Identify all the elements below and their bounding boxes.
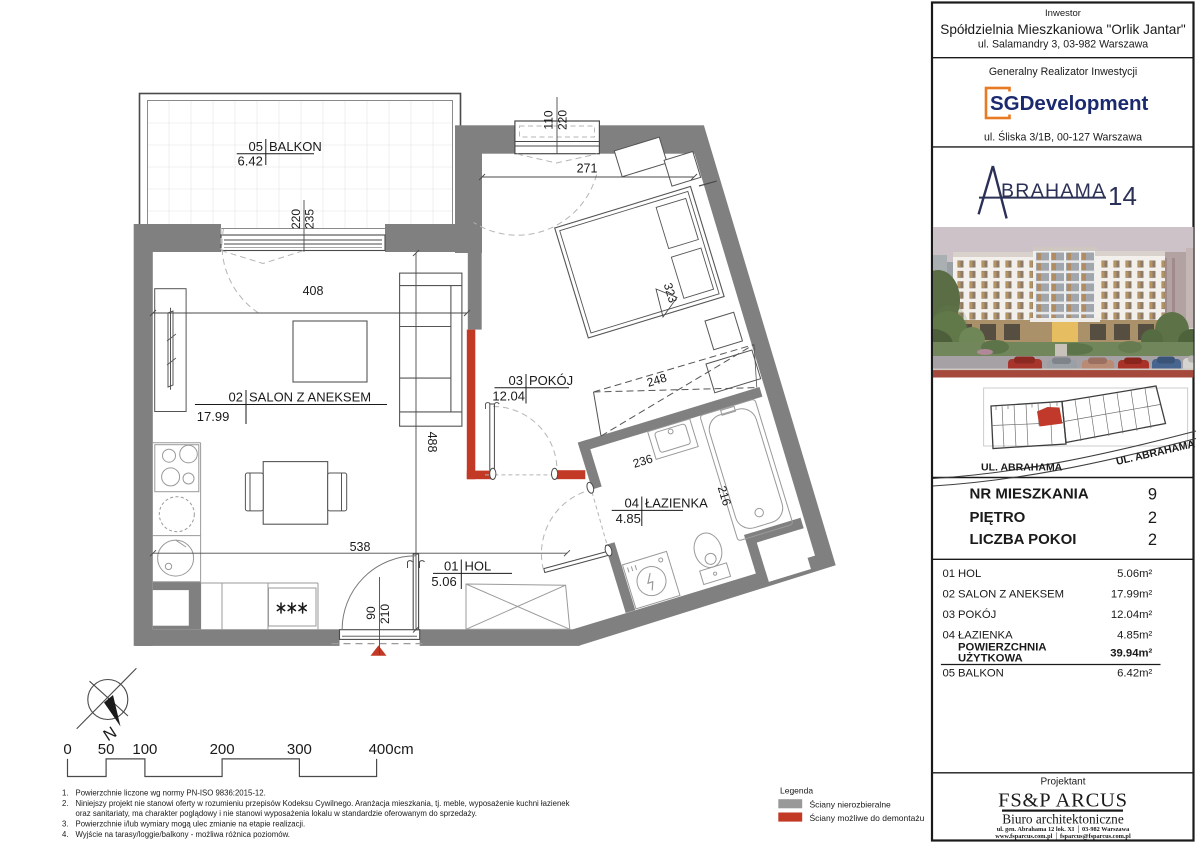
svg-text:PIĘTRO: PIĘTRO <box>970 509 1026 526</box>
svg-text:400cm: 400cm <box>369 741 414 758</box>
svg-text:UL. ABRAHAMA: UL. ABRAHAMA <box>981 462 1063 474</box>
svg-text:9: 9 <box>1148 486 1157 504</box>
svg-text:4.: 4. <box>62 830 69 839</box>
svg-text:SALON Z ANEKSEM: SALON Z ANEKSEM <box>249 390 371 405</box>
svg-text:50: 50 <box>98 741 115 758</box>
svg-text:488: 488 <box>425 432 439 453</box>
svg-text:NR MIESZKANIA: NR MIESZKANIA <box>970 486 1089 503</box>
svg-text:oraz sanitariaty, ma charakter: oraz sanitariaty, ma charakter poglądowy… <box>76 809 477 818</box>
svg-text:5.06: 5.06 <box>431 574 456 589</box>
svg-text:Ściany nierozbieralne: Ściany nierozbieralne <box>810 799 892 810</box>
svg-text:POKÓJ: POKÓJ <box>958 608 996 621</box>
svg-text:Legenda: Legenda <box>780 786 813 796</box>
svg-text:538: 538 <box>350 540 371 554</box>
svg-text:0: 0 <box>63 741 71 758</box>
svg-text:ŁAZIENKA: ŁAZIENKA <box>958 630 1013 642</box>
svg-text:ul. Salamandry 3, 03-982 Warsz: ul. Salamandry 3, 03-982 Warszawa <box>978 39 1148 51</box>
svg-text:2: 2 <box>1148 509 1157 527</box>
svg-text:POKÓJ: POKÓJ <box>529 373 573 388</box>
svg-text:3.: 3. <box>62 820 69 829</box>
svg-text:Inwestor: Inwestor <box>1045 8 1081 19</box>
svg-text:248: 248 <box>645 370 669 389</box>
svg-text:14: 14 <box>1108 181 1137 211</box>
svg-text:5.06m²: 5.06m² <box>1117 568 1152 580</box>
svg-text:271: 271 <box>577 162 598 176</box>
svg-text:03: 03 <box>943 609 956 621</box>
svg-text:220: 220 <box>289 209 303 229</box>
svg-text:02: 02 <box>943 589 956 601</box>
svg-text:02: 02 <box>229 390 243 405</box>
svg-text:6.42: 6.42 <box>238 154 263 169</box>
svg-text:4.85m²: 4.85m² <box>1117 630 1152 642</box>
svg-text:235: 235 <box>303 209 317 229</box>
svg-text:Niniejszy projekt nie stanowi: Niniejszy projekt nie stanowi oferty w r… <box>76 799 570 808</box>
svg-text:4.85: 4.85 <box>616 511 641 526</box>
svg-text:04: 04 <box>625 496 639 511</box>
svg-text:ŁAZIENKA: ŁAZIENKA <box>645 496 708 511</box>
svg-text:01: 01 <box>943 568 956 580</box>
svg-text:12.04: 12.04 <box>492 389 525 404</box>
svg-text:200: 200 <box>210 741 235 758</box>
svg-text:BALKON: BALKON <box>269 139 322 154</box>
svg-text:90: 90 <box>364 606 378 620</box>
svg-text:Powierzchnie liczone wg normy: Powierzchnie liczone wg normy PN-ISO 983… <box>76 789 266 798</box>
svg-text:Projektant: Projektant <box>1040 777 1085 788</box>
svg-text:210: 210 <box>378 604 392 624</box>
svg-text:100: 100 <box>132 741 157 758</box>
svg-text:2.: 2. <box>62 799 69 808</box>
svg-text:17.99m²: 17.99m² <box>1111 589 1153 601</box>
svg-text:236: 236 <box>631 451 655 470</box>
svg-text:05: 05 <box>249 139 263 154</box>
svg-text:1.: 1. <box>62 789 69 798</box>
svg-text:04: 04 <box>943 630 956 642</box>
svg-text:BALKON: BALKON <box>958 668 1004 680</box>
svg-text:6.42m²: 6.42m² <box>1117 668 1152 680</box>
svg-text:12.04m²: 12.04m² <box>1111 609 1153 621</box>
svg-text:BRAHAMA: BRAHAMA <box>1001 180 1107 202</box>
svg-text:110: 110 <box>542 110 556 129</box>
svg-text:Ściany możliwe do demontażu: Ściany możliwe do demontażu <box>810 812 925 823</box>
svg-text:Spółdzielnia Mieszkaniowa "Orl: Spółdzielnia Mieszkaniowa "Orlik Jantar" <box>940 22 1186 37</box>
svg-text:17.99: 17.99 <box>197 409 230 424</box>
svg-text:Powierzchnie i/lub wymiary mog: Powierzchnie i/lub wymiary mogą ulec zmi… <box>76 820 306 829</box>
svg-text:SALON Z ANEKSEM: SALON Z ANEKSEM <box>958 589 1064 601</box>
svg-text:2: 2 <box>1148 531 1157 549</box>
svg-text:UŻYTKOWA: UŻYTKOWA <box>958 652 1023 665</box>
svg-text:ul. gen. Abrahama 12 lok. XI │: ul. gen. Abrahama 12 lok. XI │ 03-982 Wa… <box>997 825 1130 833</box>
svg-text:Generalny Realizator Inwestycj: Generalny Realizator Inwestycji <box>989 66 1137 78</box>
svg-text:300: 300 <box>287 741 312 758</box>
svg-text:HOL: HOL <box>465 559 492 574</box>
svg-text:220: 220 <box>556 110 570 130</box>
svg-text:HOL: HOL <box>958 568 981 580</box>
svg-text:FS&P ARCUS: FS&P ARCUS <box>998 790 1128 812</box>
svg-text:05: 05 <box>943 668 956 680</box>
svg-text:www.fsparcus.com.pl │ fsparcus: www.fsparcus.com.pl │ fsparcus@fsparcus.… <box>995 832 1131 840</box>
svg-text:39.94m²: 39.94m² <box>1110 648 1152 660</box>
svg-text:03: 03 <box>509 373 523 388</box>
svg-text:LICZBA POKOI: LICZBA POKOI <box>970 531 1077 548</box>
svg-text:ul. Śliska 3/1B, 00-127 Warsza: ul. Śliska 3/1B, 00-127 Warszawa <box>984 131 1142 144</box>
svg-text:408: 408 <box>303 284 324 298</box>
svg-text:Biuro architektoniczne: Biuro architektoniczne <box>1002 812 1124 827</box>
svg-text:Wyjście na tarasy/loggie/balko: Wyjście na tarasy/loggie/balkony - możli… <box>76 830 290 839</box>
svg-text:SGDevelopment: SGDevelopment <box>990 92 1149 115</box>
svg-text:01: 01 <box>444 559 458 574</box>
